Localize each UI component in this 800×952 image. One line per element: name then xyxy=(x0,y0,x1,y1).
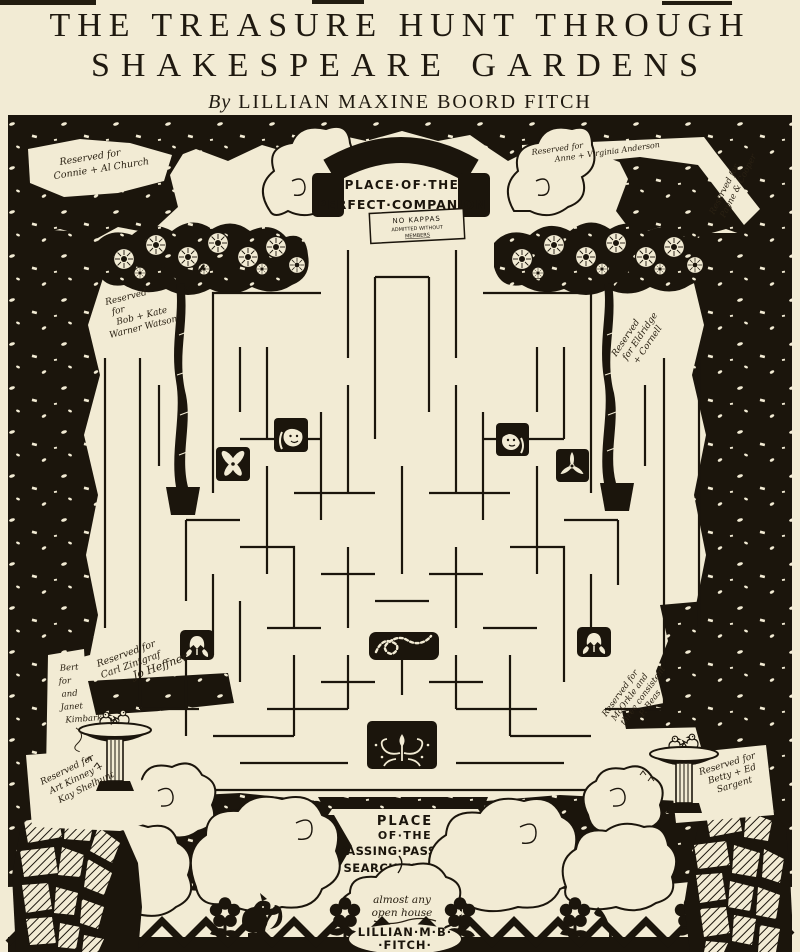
annotation-line: Bert xyxy=(59,663,80,674)
tree-pot xyxy=(166,487,200,515)
scan-smudge xyxy=(662,1,732,5)
annotation-line: Janet xyxy=(58,701,84,713)
tulip-medallion-right xyxy=(577,627,611,657)
entrance-title-line1: PLACE·OF·THE xyxy=(345,178,460,192)
signature-line2: ·FITCH· xyxy=(378,938,432,952)
garden-illustration: PLACE·OF·THE PERFECT·COMPANION NO KAPPAS… xyxy=(0,115,800,952)
scan-smudge xyxy=(0,0,96,5)
caterpillar-medallion xyxy=(369,632,439,660)
exit-line1: PLACE xyxy=(377,814,433,829)
boy-face-medallion xyxy=(496,423,529,456)
flourish-medallion xyxy=(367,721,437,769)
cloud-note-line2: open house xyxy=(372,907,433,919)
byline-prefix: By xyxy=(208,91,231,113)
page-title-line1: THE TREASURE HUNT THROUGH xyxy=(0,7,800,45)
byline-name: LILLIAN MAXINE BOORD FITCH xyxy=(238,91,592,113)
byline: By LILLIAN MAXINE BOORD FITCH xyxy=(0,91,800,114)
scanned-page: THE TREASURE HUNT THROUGH SHAKESPEARE GA… xyxy=(0,0,800,952)
scan-smudge xyxy=(312,0,364,4)
exit-line2: OF·THE xyxy=(378,829,432,842)
cloud-note-line1: almost any xyxy=(373,894,432,906)
signature-line1: LILLIAN·M·B· xyxy=(358,925,452,939)
tree-pot xyxy=(600,483,634,511)
trillium-medallion xyxy=(556,449,589,482)
entrance-sign: NO KAPPAS ADMITTED WITHOUT MEMBERS xyxy=(369,209,464,244)
page-title-line2: SHAKESPEARE GARDENS xyxy=(0,47,800,85)
annotation-line: and xyxy=(61,689,78,700)
annotation-line: for xyxy=(57,676,72,687)
orchid-medallion xyxy=(216,447,250,481)
girl-face-medallion xyxy=(274,418,308,452)
page-header: THE TREASURE HUNT THROUGH SHAKESPEARE GA… xyxy=(0,0,800,115)
